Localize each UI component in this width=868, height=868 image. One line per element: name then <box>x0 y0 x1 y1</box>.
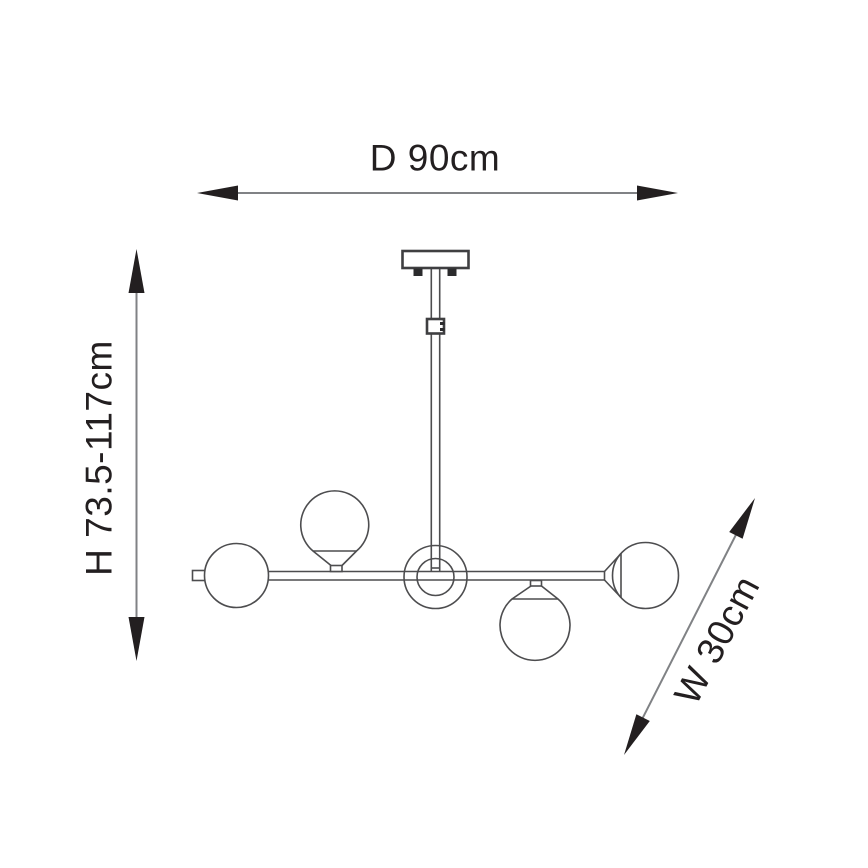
diameter-dimension-arrow <box>197 186 678 201</box>
fixture-diagram-svg <box>0 0 868 868</box>
coupler-screw-bottom <box>440 328 445 331</box>
globe-lower-neck <box>531 581 542 587</box>
height-dimension-arrow <box>129 249 145 661</box>
rod-coupler <box>427 319 444 334</box>
globe-left <box>205 544 269 608</box>
height-dimension-label: H 73.5-117cm <box>81 340 118 576</box>
globe-lower-outline <box>500 586 570 660</box>
diameter-dimension-label: D 90cm <box>370 140 500 177</box>
globe-right <box>605 543 679 609</box>
center-hub-outer-ring <box>404 546 467 609</box>
light-fixture-drawing <box>193 251 679 660</box>
globe-lower <box>500 581 570 661</box>
canopy-nub-right <box>448 269 457 277</box>
arrowhead-up-icon <box>129 249 145 293</box>
arrowhead-downleft-icon <box>624 714 650 755</box>
center-hub-inner-ring <box>417 559 454 596</box>
globe-upper-outline <box>301 491 369 566</box>
canopy-nub-left <box>414 269 423 277</box>
arrowhead-right-icon <box>637 186 678 201</box>
globe-upper <box>301 491 369 572</box>
arrowhead-left-icon <box>197 186 238 201</box>
globe-upper-neck <box>331 566 343 572</box>
ceiling-canopy <box>403 251 469 268</box>
dimension-diagram: D 90cm H 73.5-117cm W 30cm <box>0 0 868 868</box>
arrowhead-upright-icon <box>729 498 755 539</box>
globe-right-circle <box>613 543 679 609</box>
coupler-screw-top <box>440 322 445 325</box>
arrowhead-down-icon <box>129 617 145 661</box>
